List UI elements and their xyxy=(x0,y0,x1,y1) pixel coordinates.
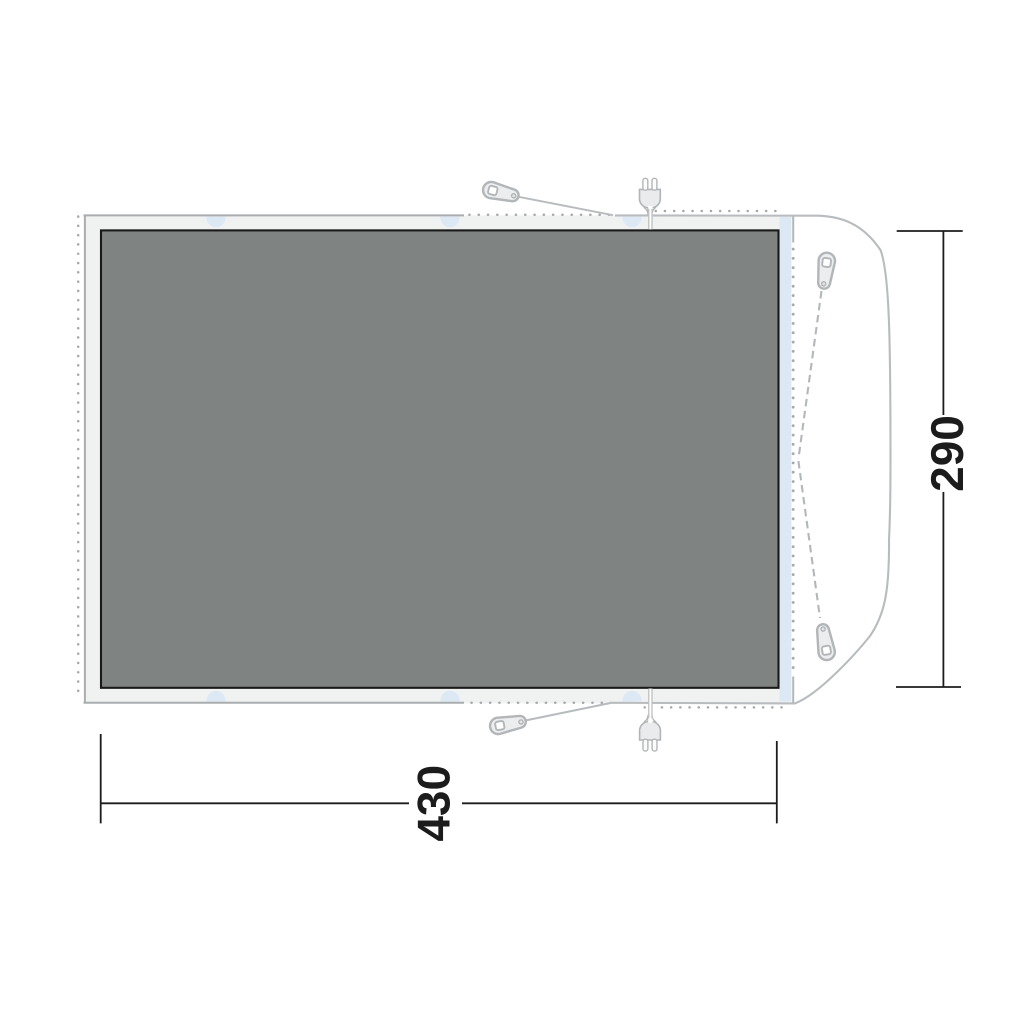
svg-text:430: 430 xyxy=(408,765,460,842)
svg-text:290: 290 xyxy=(921,415,973,492)
